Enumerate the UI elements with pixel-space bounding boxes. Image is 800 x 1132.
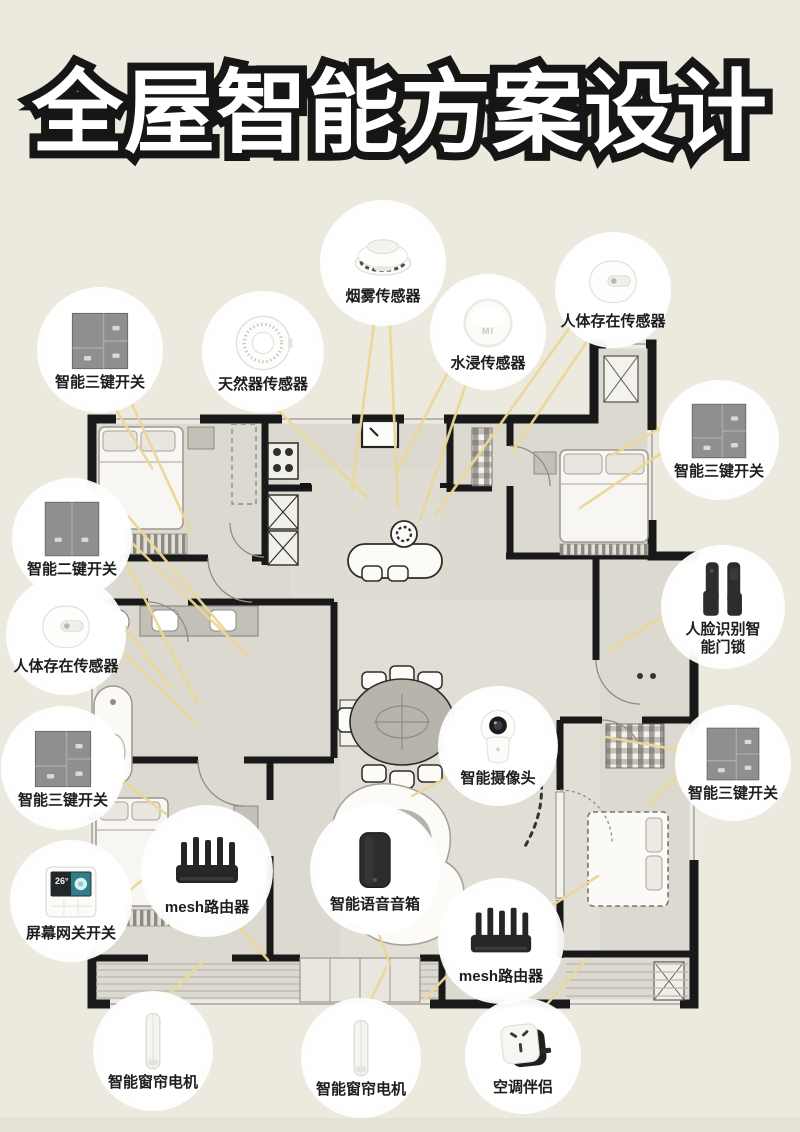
gateway-screen-temp: 26°: [55, 876, 69, 886]
callout-label: 人脸识别智能门锁: [681, 621, 765, 656]
footer-strip: [0, 1118, 800, 1132]
callout-presence-sensor-top-right: 人体存在传感器: [555, 232, 671, 348]
presence-sensor-icon: [582, 250, 644, 312]
callout-label: 智能语音音箱: [330, 896, 420, 914]
callout-switch3-left-lower: 智能三键开关: [1, 706, 125, 830]
router-icon: [171, 826, 243, 898]
gas-sensor-icon: [231, 311, 295, 375]
callout-label: mesh路由器: [459, 968, 543, 986]
ac-companion-icon: [492, 1016, 554, 1078]
switch2-icon: [41, 498, 103, 560]
water-sensor-icon: [457, 292, 519, 354]
callout-switch3-right-lower: 智能三键开关: [675, 705, 791, 821]
switch3-icon: [68, 309, 132, 373]
callout-smart-speaker: 智能语音音箱: [310, 805, 440, 935]
speaker-icon: [341, 827, 409, 895]
callout-label: 烟雾传感器: [345, 288, 420, 306]
poster: 全屋智能方案设计 全屋智能方案设计: [0, 0, 800, 1132]
switch3-icon: [31, 727, 95, 791]
callout-screen-gateway: 26° 屏幕网关开关: [10, 840, 132, 962]
callout-smart-camera: 智能摄像头: [438, 686, 558, 806]
callout-label: 屏幕网关开关: [26, 925, 116, 943]
callout-smoke-sensor: 烟雾传感器: [320, 200, 446, 326]
callout-presence-sensor-left: 人体存在传感器: [6, 575, 126, 695]
callout-door-lock: 人脸识别智能门锁: [661, 545, 785, 669]
callout-label: 智能窗帘电机: [316, 1081, 406, 1099]
callout-water-sensor: MI 水浸传感器: [430, 274, 546, 390]
callout-ac-companion: 空调伴侣: [465, 998, 581, 1114]
screen-gateway-icon: [39, 860, 103, 924]
callout-label: 水浸传感器: [450, 355, 525, 373]
callout-label: 智能三键开关: [674, 463, 764, 481]
callout-label: 天然器传感器: [218, 376, 308, 394]
callout-label: 智能三键开关: [55, 374, 145, 392]
callout-label: 人体存在传感器: [13, 658, 118, 676]
callout-mesh-router-right: mesh路由器: [438, 878, 564, 1004]
router-icon: [466, 897, 536, 967]
presence-sensor-icon: [35, 595, 97, 657]
callout-switch3-right-upper: 智能三键开关: [659, 380, 779, 500]
callout-label: 智能三键开关: [688, 785, 778, 803]
callout-label: mesh路由器: [165, 899, 249, 917]
callout-label: 智能窗帘电机: [108, 1074, 198, 1092]
callout-mesh-router-left: mesh路由器: [141, 805, 273, 937]
callout-switch3-top-left: 智能三键开关: [37, 287, 163, 413]
smoke-sensor-icon: [350, 221, 416, 287]
callout-label: 空调伴侣: [493, 1079, 553, 1097]
curtain-motor-icon: [122, 1011, 184, 1073]
balcony-steps: [300, 958, 420, 1002]
switch3-icon: [703, 724, 763, 784]
callout-label: 智能摄像头: [460, 770, 535, 788]
callout-gas-sensor: 天然器传感器: [202, 291, 324, 413]
callout-curtain-motor-center: 智能窗帘电机: [301, 998, 421, 1118]
camera-icon: [466, 705, 530, 769]
curtain-motor-icon: [330, 1018, 392, 1080]
callout-curtain-motor-left: 智能窗帘电机: [93, 991, 213, 1111]
callout-label: 人体存在传感器: [560, 313, 665, 331]
door-lock-icon: [692, 558, 754, 620]
callout-label: 智能三键开关: [18, 792, 108, 810]
water-sensor-logo: MI: [482, 326, 494, 336]
switch3-icon: [688, 400, 750, 462]
